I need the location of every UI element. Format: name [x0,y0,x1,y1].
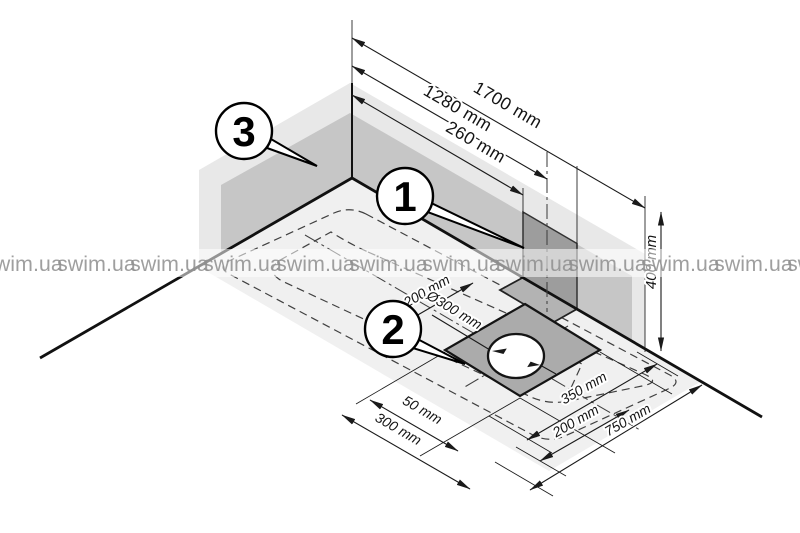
drain-hole [488,334,544,378]
callout-3-number: 3 [232,108,255,155]
callout-2-number: 2 [381,306,404,353]
watermark-text: swim.ua [203,252,282,276]
watermark-text: swim.ua [349,252,428,276]
watermark-text: swim.ua [57,252,136,276]
watermark-text: swim.ua [714,252,793,276]
watermark-text: swim.ua [641,252,720,276]
watermark-text: swim.ua [276,252,355,276]
bathtub-installation-diagram: 1700 mm 1280 mm 260 mm 400 mm 200 mm Ø30… [0,0,800,533]
watermark-row: swim.uaswim.uaswim.uaswim.uaswim.uaswim.… [0,252,800,276]
watermark-text: swim.ua [495,252,574,276]
callout-1-number: 1 [393,173,416,220]
watermark-text: swim.ua [130,252,209,276]
watermark-text: swim.ua [0,252,63,276]
watermark-text: swim.ua [568,252,647,276]
watermark-text: swim.ua [787,252,800,276]
watermark-text: swim.ua [422,252,501,276]
